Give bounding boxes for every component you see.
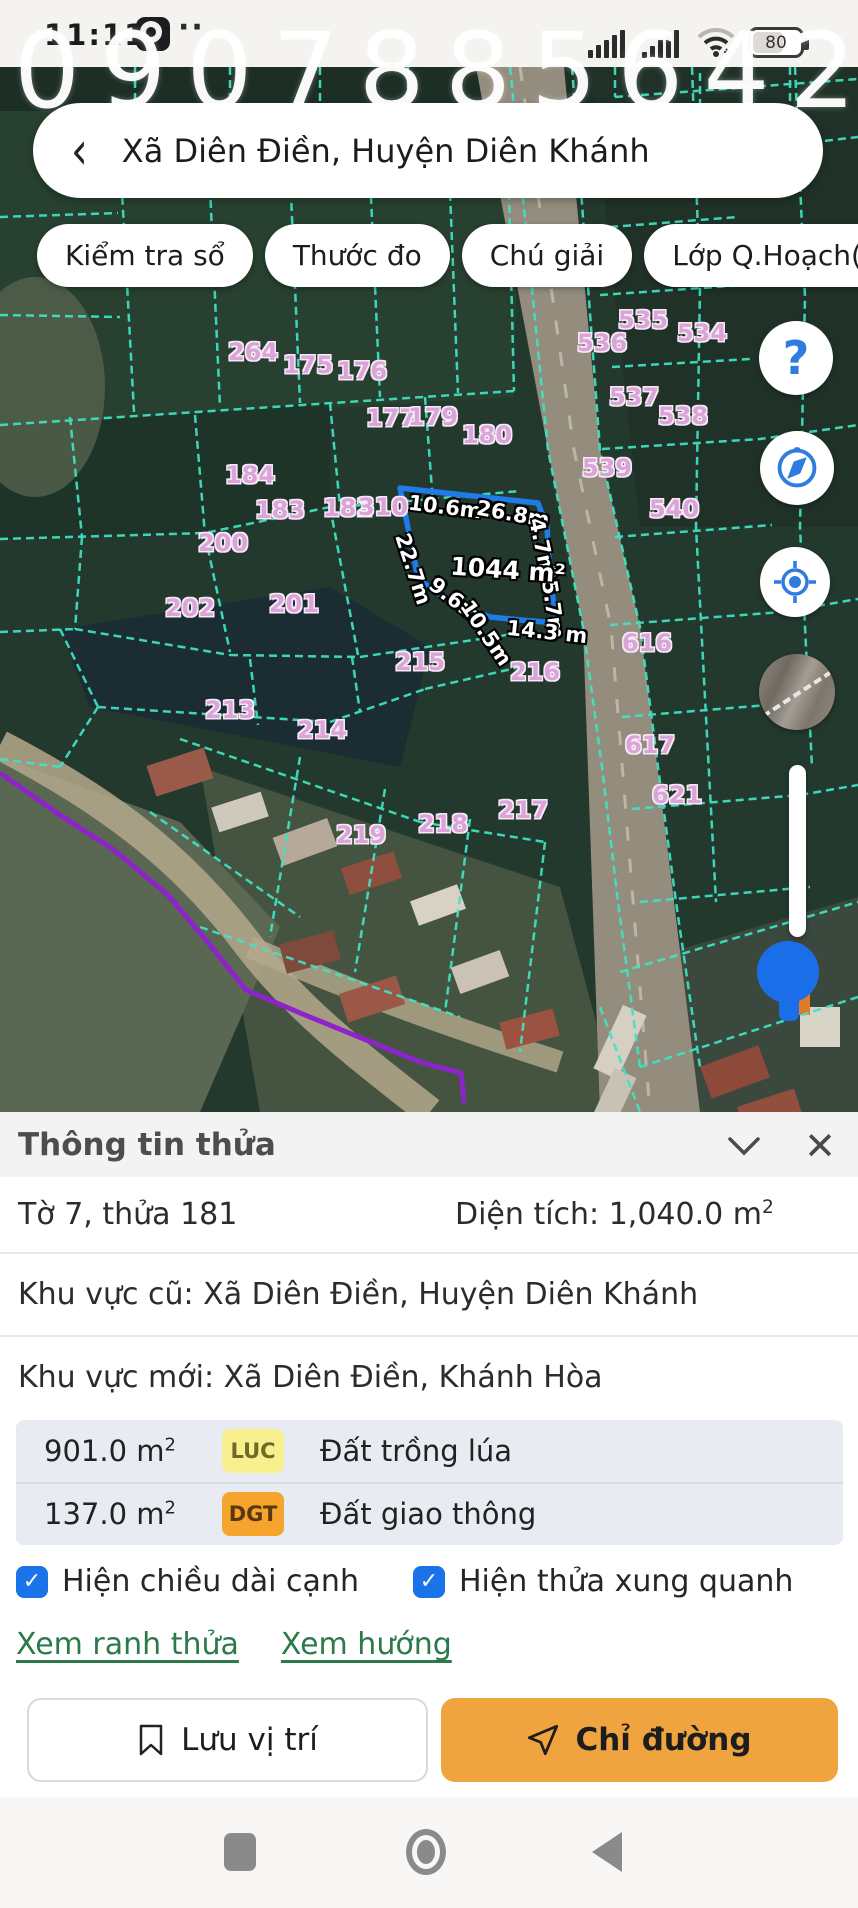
parcel-number-218: 218 [418, 810, 468, 838]
parcel-number-213: 213 [205, 696, 255, 724]
parcel-number-539: 539 [582, 454, 632, 482]
compass-button[interactable] [760, 431, 834, 505]
parcel-number-180: 180 [462, 421, 512, 449]
notification-badge-icon [136, 17, 170, 51]
parcel-info-panel: Thông tin thửa ✕ Tờ 7, thửa 181 Diện tíc… [0, 1112, 858, 1908]
parcel-number-201: 201 [269, 590, 319, 618]
parcel-number-176: 176 [337, 357, 387, 385]
links-row: Xem ranh thửaXem hướng [16, 1627, 452, 1662]
zoom-slider[interactable] [789, 765, 806, 937]
toolbar-chip-2[interactable]: Chú giải [462, 224, 632, 287]
parcel-number-183: 183 [255, 496, 305, 524]
land-code-badge: DGT [222, 1492, 284, 1536]
checkbox-row: ✓Hiện chiều dài cạnh✓Hiện thửa xung quan… [16, 1564, 831, 1599]
save-location-label: Lưu vị trí [181, 1722, 318, 1758]
green-link-0[interactable]: Xem ranh thửa [16, 1627, 239, 1662]
battery-icon: 80 [748, 27, 804, 58]
parcel-number-184: 184 [225, 461, 275, 489]
area-text: Diện tích: 1,040.0 m2 [455, 1197, 774, 1232]
search-location-title: Xã Diên Điền, Huyện Diên Khánh [122, 132, 650, 170]
land-code-badge: LUC [222, 1429, 284, 1473]
directions-label: Chỉ đường [575, 1722, 751, 1758]
parcel-number-621: 621 [652, 781, 702, 809]
land-use-row-DGT: 137.0 m2DGTĐất giao thông [16, 1482, 843, 1544]
gps-locate-button[interactable] [760, 547, 830, 617]
parcel-number-175: 175 [283, 351, 333, 379]
notification-dots: ·· [178, 10, 205, 45]
toolbar-chip-3[interactable]: Lớp Q.Hoạch(5) [644, 224, 858, 287]
panel-title: Thông tin thửa [18, 1127, 276, 1163]
bookmark-icon [137, 1723, 165, 1757]
chevron-down-icon [727, 1135, 761, 1157]
search-bar[interactable]: ‹ Xã Diên Điền, Huyện Diên Khánh [33, 103, 823, 198]
new-region-text: Khu vực mới: Xã Diên Điền, Khánh Hòa [18, 1360, 603, 1395]
checkbox-item-1[interactable]: ✓Hiện thửa xung quanh [413, 1564, 793, 1599]
land-use-table: 901.0 m2LUCĐất trồng lúa137.0 m2DGTĐất g… [16, 1420, 843, 1545]
clock-text: 11:11 [44, 18, 146, 52]
parcel-number-215: 215 [395, 648, 445, 676]
parcel-number-202: 202 [165, 594, 215, 622]
parcel-number-534: 534 [677, 319, 727, 347]
old-region-text: Khu vực cũ: Xã Diên Điền, Huyện Diên Khá… [18, 1277, 698, 1312]
parcel-number-617: 617 [625, 731, 675, 759]
status-bar: 11:11 ·· 80 [0, 0, 858, 67]
directions-button[interactable]: Chỉ đường [441, 1698, 838, 1782]
app-screen: 2641751761771791801841831823102002012022… [0, 0, 858, 1908]
cellular-signal2-icon [642, 28, 684, 58]
save-location-button[interactable]: Lưu vị trí [27, 1698, 428, 1782]
land-area: 901.0 m2 [44, 1434, 204, 1468]
old-region-row: Khu vực cũ: Xã Diên Điền, Huyện Diên Khá… [0, 1254, 858, 1335]
close-panel-button[interactable]: ✕ [798, 1124, 842, 1168]
recents-icon[interactable] [224, 1833, 256, 1871]
checkbox-item-0[interactable]: ✓Hiện chiều dài cạnh [16, 1564, 359, 1599]
parcel-number-540: 540 [649, 495, 699, 523]
send-icon [527, 1724, 559, 1756]
parcel-number-179: 179 [408, 403, 458, 431]
street-view-button[interactable] [759, 654, 835, 730]
checkbox-label: Hiện thửa xung quanh [459, 1564, 793, 1599]
land-type-label: Đất trồng lúa [320, 1434, 512, 1468]
collapse-panel-button[interactable] [722, 1124, 766, 1168]
compass-icon [773, 444, 821, 492]
toolbar-chip-row: Kiểm tra sổThước đoChú giảiLớp Q.Hoạch(5… [37, 224, 858, 287]
parcel-id-row: Tờ 7, thửa 181 Diện tích: 1,040.0 m2 [0, 1177, 858, 1252]
toolbar-chip-1[interactable]: Thước đo [265, 224, 450, 287]
parcel-number-219: 219 [336, 821, 386, 849]
parcel-number-214: 214 [297, 716, 347, 744]
home-icon[interactable] [406, 1829, 446, 1875]
parcel-number-616: 616 [622, 629, 672, 657]
land-use-row-LUC: 901.0 m2LUCĐất trồng lúa [16, 1420, 843, 1482]
gps-target-icon [772, 559, 818, 605]
panel-header: Thông tin thửa ✕ [0, 1112, 858, 1177]
parcel-number-537: 537 [609, 383, 659, 411]
android-nav-bar [0, 1797, 858, 1908]
battery-percent: 80 [765, 33, 787, 53]
checkbox-icon[interactable]: ✓ [16, 1566, 48, 1598]
toolbar-chip-0[interactable]: Kiểm tra sổ [37, 224, 253, 287]
parcel-number-217: 217 [498, 796, 548, 824]
parcel-number-538: 538 [658, 402, 708, 430]
help-button[interactable]: ? [759, 321, 833, 395]
new-region-row: Khu vực mới: Xã Diên Điền, Khánh Hòa [0, 1337, 858, 1418]
wifi-icon [696, 26, 736, 58]
parcel-number-216: 216 [510, 658, 560, 686]
land-type-label: Đất giao thông [320, 1497, 536, 1531]
parcel-number-310: 310 [358, 493, 408, 521]
cellular-signal-icon [588, 28, 630, 58]
parcel-number-264: 264 [228, 338, 278, 366]
checkbox-icon[interactable]: ✓ [413, 1566, 445, 1598]
checkbox-label: Hiện chiều dài cạnh [62, 1564, 359, 1599]
parcel-number-200: 200 [198, 529, 248, 557]
back-nav-icon[interactable] [592, 1832, 622, 1872]
back-icon[interactable]: ‹ [71, 124, 88, 177]
land-area: 137.0 m2 [44, 1497, 204, 1531]
parcel-number-536: 536 [577, 329, 627, 357]
green-link-1[interactable]: Xem hướng [281, 1627, 452, 1662]
question-mark-icon: ? [783, 331, 810, 385]
sheet-parcel-text: Tờ 7, thửa 181 [18, 1197, 237, 1232]
